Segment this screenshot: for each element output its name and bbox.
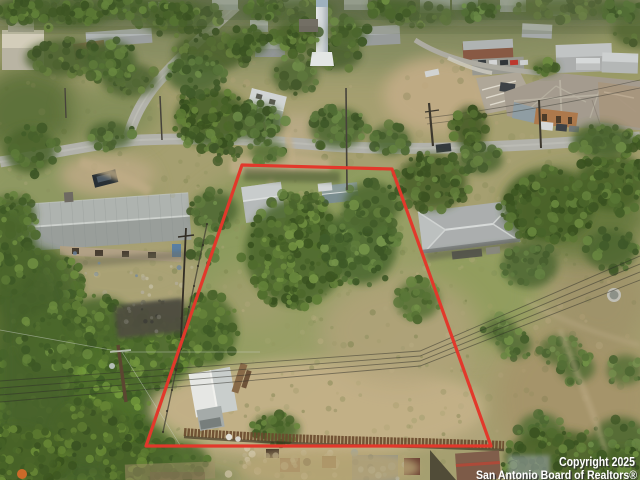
- svg-text:Copyright 2025: Copyright 2025: [559, 454, 635, 469]
- svg-text:San Antonio Board of Realtors®: San Antonio Board of Realtors®: [476, 470, 637, 480]
